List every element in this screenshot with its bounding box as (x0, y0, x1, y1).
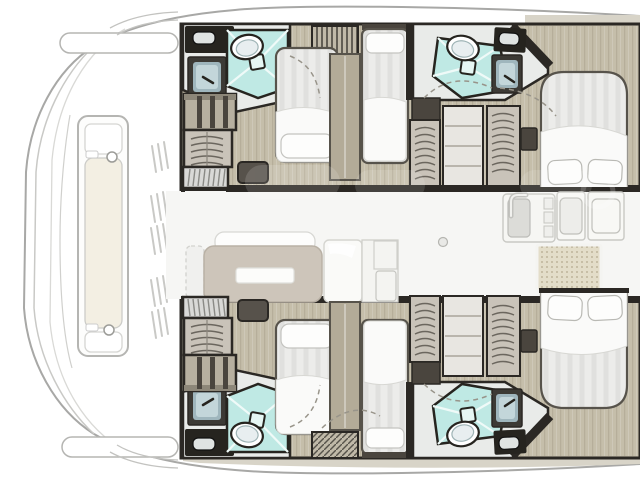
sunpad-tab-top (86, 151, 98, 158)
double-bed-duvet (276, 375, 338, 434)
cabinet-top (412, 98, 440, 120)
sink-panel-inner (196, 393, 218, 417)
single-berth-duvet (364, 321, 406, 385)
bench-outline (186, 246, 204, 298)
single-berth-pillow (366, 428, 404, 448)
catamaran-floor-plan (0, 0, 640, 480)
bed-headboard (539, 288, 629, 293)
head-wall-left (406, 382, 414, 458)
wardrobe-dividers (197, 357, 228, 389)
sink-basin (560, 198, 582, 234)
cleat-top (107, 152, 117, 162)
hanging-locker-b (487, 296, 520, 376)
vanity-sink (499, 32, 520, 45)
bed-pillow-left (547, 295, 582, 321)
sunpad-bottom-hatch (85, 332, 122, 352)
sunpad-cushion (85, 158, 122, 328)
vanity-sink (193, 32, 215, 44)
vanity-sink (193, 438, 215, 450)
galley-drawers (544, 198, 553, 237)
step-pouf (238, 300, 268, 321)
nightstand (521, 128, 537, 150)
double-bed-pillow (281, 134, 333, 158)
vanity-sink (499, 437, 520, 450)
sink-panel-inner (196, 65, 218, 89)
port-forward-cabin (276, 24, 408, 180)
deck-fitting (439, 238, 448, 247)
bow-step-bar-top (60, 33, 178, 53)
single-berth-duvet (364, 97, 406, 161)
starboard-forward-cabin (276, 302, 408, 458)
cabinet-bottom (412, 362, 440, 384)
starboard-mid-storage (410, 296, 520, 384)
double-bed-pillow (281, 324, 333, 348)
sofa-table (236, 268, 294, 283)
wardrobe-dividers (197, 96, 228, 128)
sunpad-tab-bottom (86, 324, 98, 331)
shower-drain (460, 407, 476, 423)
head-wall-left (406, 24, 414, 100)
sunpad-top-hatch (85, 124, 122, 154)
nightstand (521, 330, 537, 352)
shelf-unit (312, 432, 358, 458)
hanging-locker-b (487, 106, 520, 186)
single-berth-pillow (366, 33, 404, 53)
hanging-locker (184, 318, 232, 355)
floor-mat (537, 245, 601, 291)
shower-drain (460, 59, 476, 75)
bed-pillow-right (587, 295, 622, 321)
port-mid-storage (410, 98, 520, 186)
floor-plan-canvas (0, 0, 640, 480)
cleat-bottom (104, 325, 114, 335)
single-berth-head-strip (362, 452, 408, 458)
hanging-locker (184, 130, 232, 167)
